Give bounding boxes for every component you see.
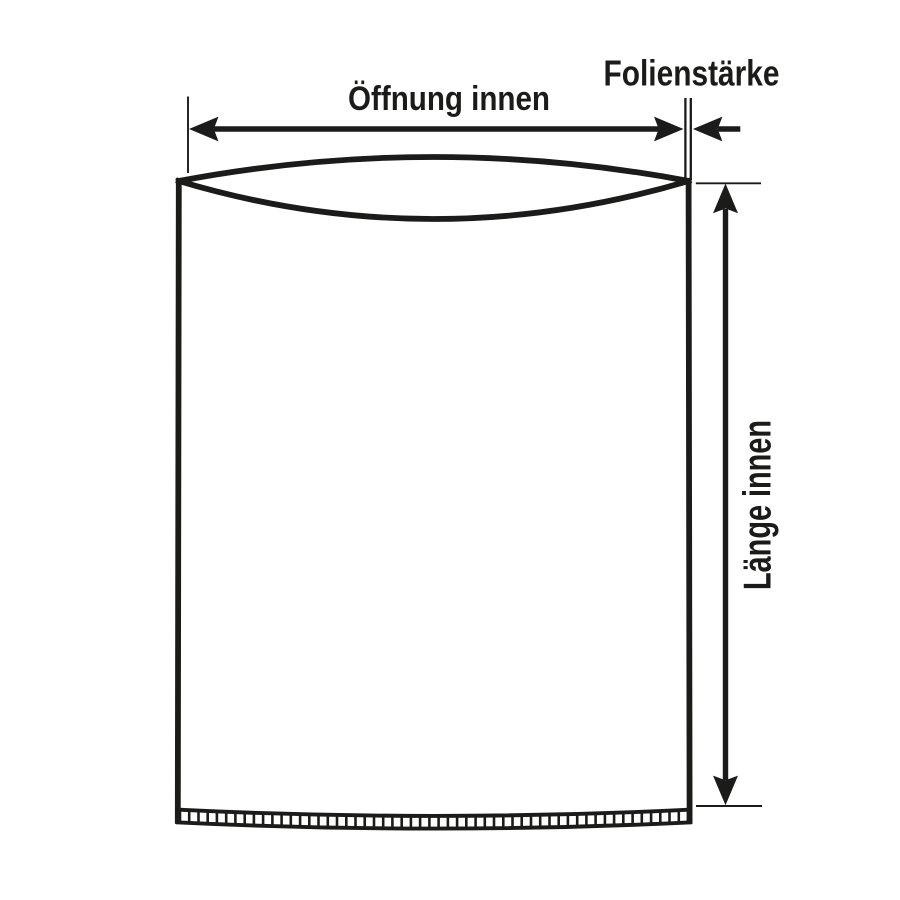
svg-text:Öffnung innen: Öffnung innen bbox=[348, 80, 550, 118]
svg-text:Folienstärke: Folienstärke bbox=[604, 53, 780, 94]
svg-text:Länge innen: Länge innen bbox=[737, 420, 780, 590]
